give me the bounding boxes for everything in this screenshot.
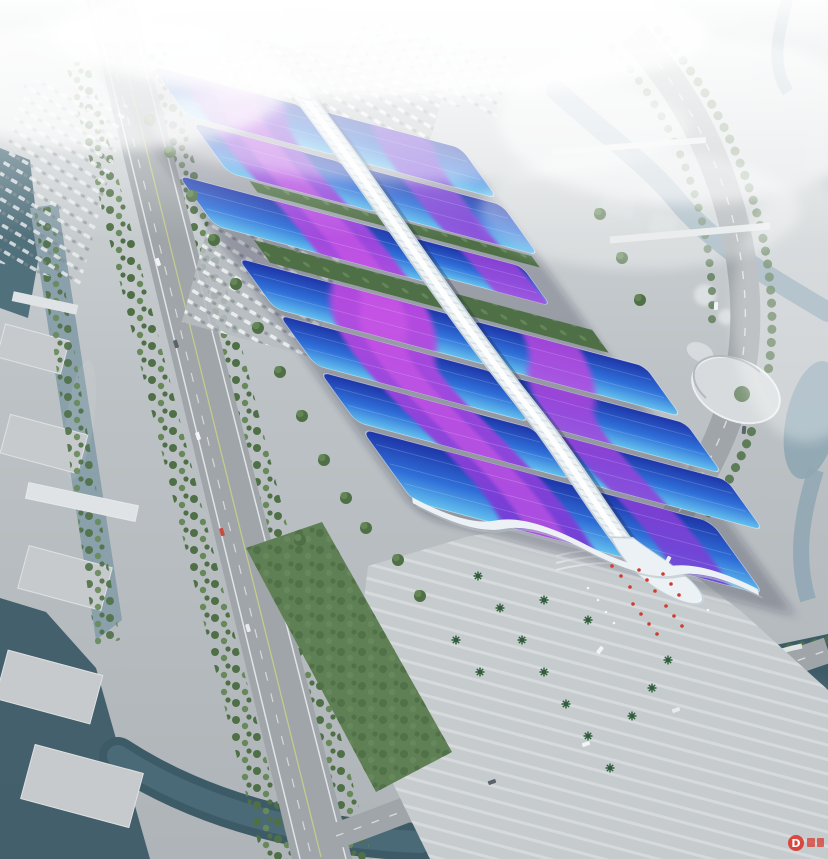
watermark-glyph: [817, 838, 824, 847]
aerial-rendering: D: [0, 0, 828, 859]
watermark-glyph: [807, 838, 815, 847]
watermark-letter: D: [791, 837, 800, 850]
rendering-canvas: D: [0, 0, 828, 859]
